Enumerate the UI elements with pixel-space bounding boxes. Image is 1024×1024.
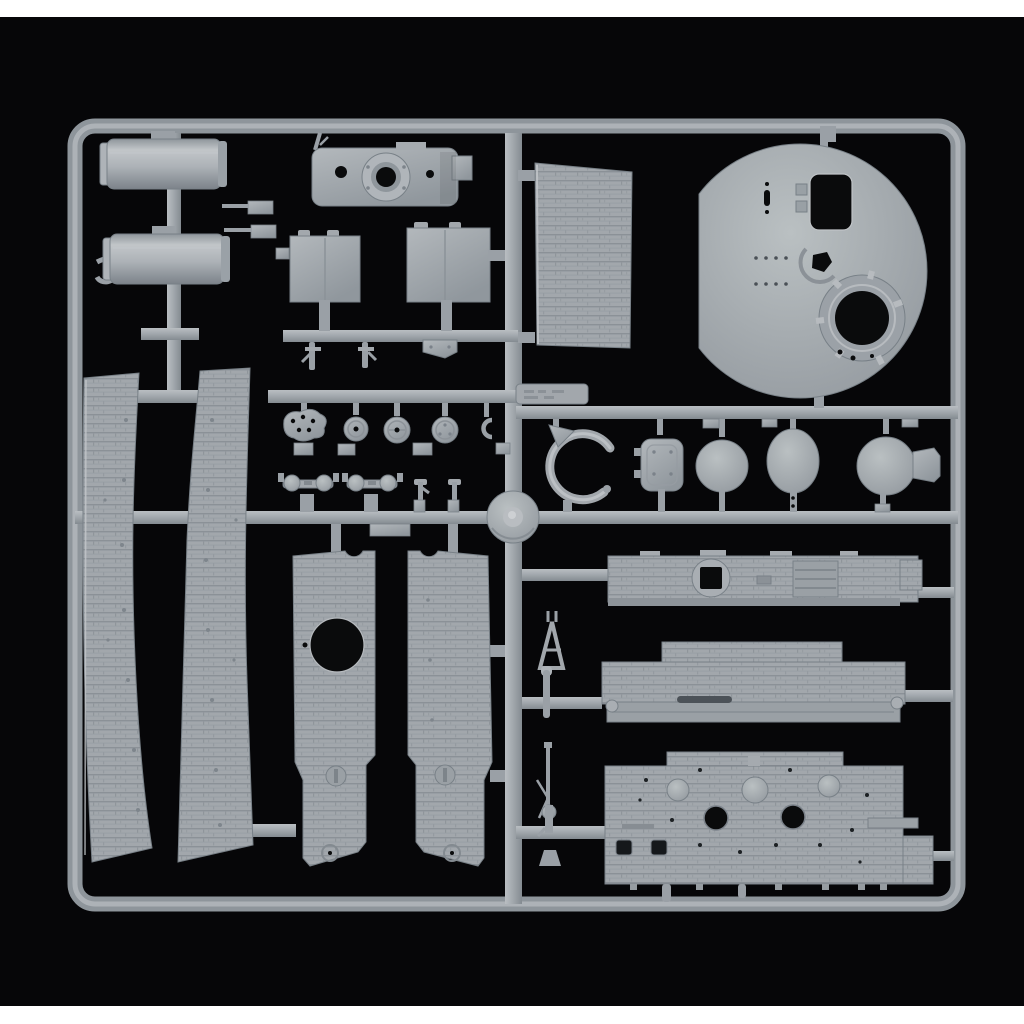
hull-rear-plate xyxy=(605,752,933,902)
branch-engine-deck xyxy=(522,697,602,709)
gate-tab-center xyxy=(370,524,410,536)
sprocket-hub xyxy=(284,409,327,441)
runner-h2-panels xyxy=(130,390,208,403)
loader-hatch-opening xyxy=(810,174,852,230)
gate-tab-2 xyxy=(251,225,276,238)
stub-frame-right-2 xyxy=(903,690,953,702)
branch-hull-top xyxy=(522,569,610,581)
cupola-cone-disc xyxy=(487,491,539,543)
cupola-opening xyxy=(310,618,364,672)
hull-top-plate xyxy=(608,550,922,606)
stub-frame-right-1 xyxy=(918,587,954,598)
connector-panels-bottom xyxy=(250,824,296,837)
runner-h1 xyxy=(283,330,518,342)
runner-h2-hubs xyxy=(268,390,518,403)
mould-id-tag xyxy=(516,384,588,404)
runner-h3-right xyxy=(516,406,958,419)
branch-rear-plate xyxy=(516,826,608,839)
runner-muffler-cap xyxy=(141,328,199,340)
gate-tab-1 xyxy=(248,201,273,214)
exhaust-muffler-1 xyxy=(100,131,227,189)
model-kit-sprue-photo: Product photo of a gray injection-molded… xyxy=(0,0,1024,1024)
exhaust-muffler-2 xyxy=(103,226,230,284)
turret-side-panel-left xyxy=(293,524,375,866)
product-photo-page: Product photo of a gray injection-molded… xyxy=(0,0,1024,1024)
